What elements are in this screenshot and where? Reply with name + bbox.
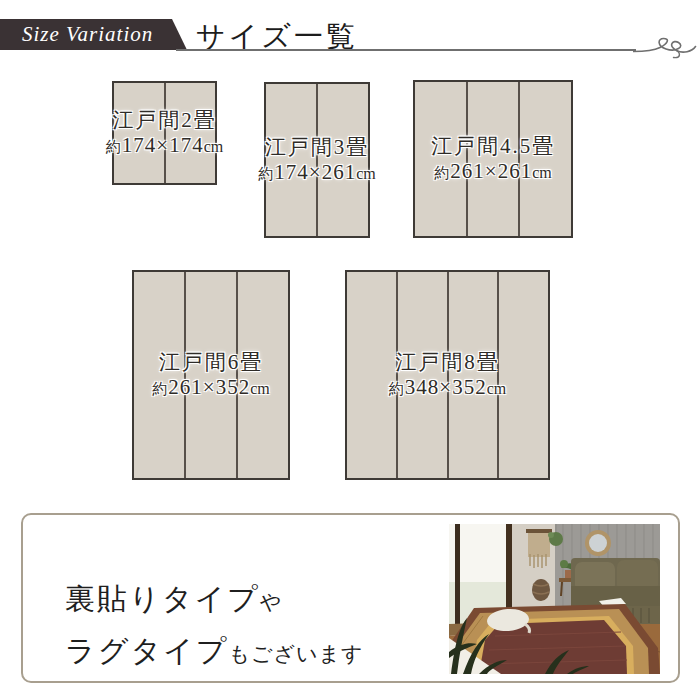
mat-size-dimensions: 約174×174cm [106, 133, 223, 158]
banner-label: Size Variation [22, 22, 153, 46]
note-text: 裏貼りタイプや ラグタイプもございます [65, 575, 363, 679]
photo-mirror-icon [585, 530, 611, 556]
mat-size-name: 江戸間2畳 [106, 108, 223, 133]
note-line-1: 裏貼りタイプや [65, 575, 363, 627]
mat-diagram-edoma-45jo: 江戸間4.5畳 約261×261cm [413, 80, 573, 238]
mat-size-name: 江戸間8畳 [389, 350, 506, 375]
mat-diagram-edoma-3jo: 江戸間3畳 約174×261cm [264, 82, 370, 238]
mat-size-name: 江戸間3畳 [258, 135, 375, 160]
mat-size-dimensions: 約174×261cm [258, 160, 375, 185]
mat-label: 江戸間4.5畳 約261×261cm [431, 134, 555, 184]
size-variation-banner: Size Variation [0, 19, 187, 50]
mat-size-dimensions: 約348×352cm [389, 375, 506, 400]
room-photo [449, 524, 660, 674]
size-variation-section: Size Variation サイズ一覧 江戸間2畳 約174×174cm 江戸… [0, 0, 700, 700]
mat-label: 江戸間6畳 約261×352cm [152, 350, 269, 400]
mat-label: 江戸間8畳 約348×352cm [389, 350, 506, 400]
mat-label: 江戸間2畳 約174×174cm [106, 108, 223, 158]
mat-diagram-edoma-2jo: 江戸間2畳 約174×174cm [112, 81, 217, 185]
mat-label: 江戸間3畳 約174×261cm [258, 135, 375, 185]
flourish-icon [633, 37, 699, 67]
mat-size-dimensions: 約261×261cm [431, 159, 555, 184]
page-title: サイズ一覧 [196, 17, 358, 57]
mat-diagram-edoma-8jo: 江戸間8畳 約348×352cm [345, 270, 550, 480]
mat-size-name: 江戸間6畳 [152, 350, 269, 375]
mat-size-dimensions: 約261×352cm [152, 375, 269, 400]
mat-size-name: 江戸間4.5畳 [431, 134, 555, 159]
header-rule [176, 49, 636, 51]
photo-basket-icon [532, 579, 550, 601]
note-line-2: ラグタイプもございます [65, 627, 363, 679]
note-box: 裏貼りタイプや ラグタイプもございます [21, 513, 680, 683]
mat-diagram-edoma-6jo: 江戸間6畳 約261×352cm [132, 270, 290, 480]
